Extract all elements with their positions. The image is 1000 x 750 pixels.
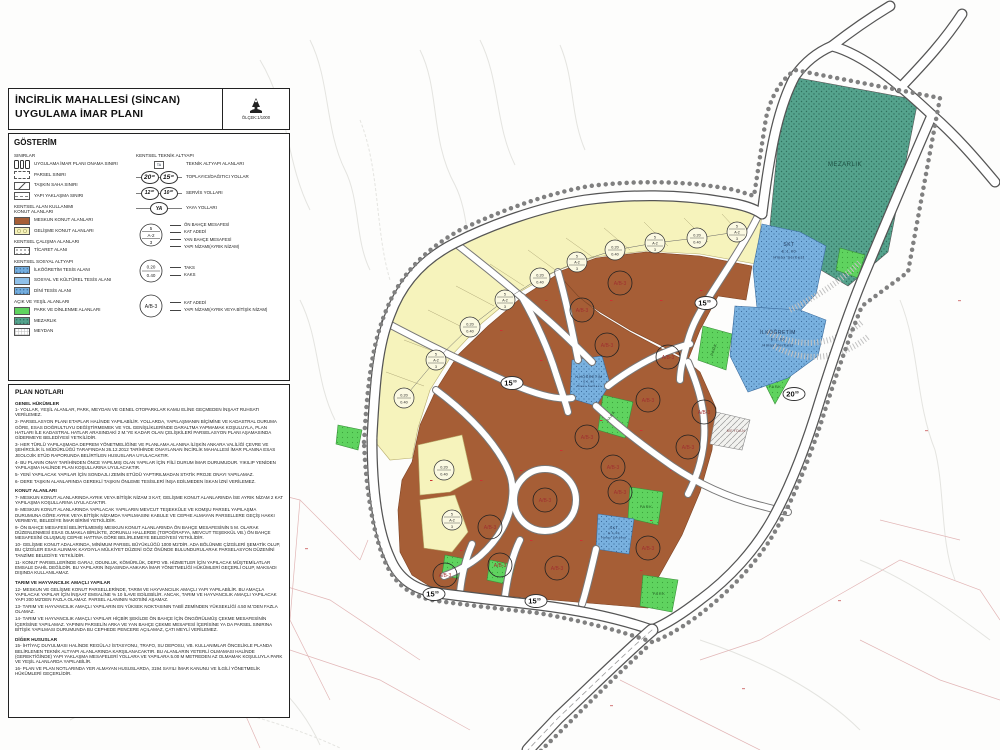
legend-item: 12001000SERVİS YOLLARI: [136, 187, 284, 200]
legend-group-title: KENTSEL ÇALIŞMA ALANLARI: [14, 239, 132, 244]
info-panel: İNCİRLİK MAHALLESİ (SİNCAN) UYGULAMA İMA…: [8, 88, 290, 718]
note-item: 7- MESKUN KONUT ALANLARINDA AYRIK VEYA B…: [15, 495, 283, 506]
setback-swatch-icon: [14, 192, 30, 200]
road-width-symbol-icon: 20001500: [136, 171, 182, 184]
ilkogretim-area: [730, 306, 826, 392]
note-section-title: DİĞER HUSUSLAR: [15, 637, 283, 642]
svg-text:0.20: 0.20: [693, 234, 700, 238]
legend-item: TAŞKIN SAHA SINIRI: [14, 182, 132, 190]
svg-text:0.40: 0.40: [147, 273, 156, 278]
svg-text:5: 5: [576, 255, 578, 259]
legend-callout-label: YAN BAHÇE MESAFESİ: [170, 237, 284, 242]
note-item: 11- KONUT PARSELLERİNDE GARAJ, ODUNLUK, …: [15, 560, 283, 576]
legend-item: UYGULAMA İMAR PLANI ONAMA SINIRI: [14, 161, 132, 169]
legend-item-label: PARSEL SINIRI: [34, 173, 66, 178]
svg-text:0.20: 0.20: [147, 264, 156, 269]
onama-swatch-icon: [14, 161, 30, 169]
block-regulation-text: A/B-3: [539, 498, 552, 504]
svg-text:0.20: 0.20: [611, 246, 618, 250]
meydan-swatch-icon: [14, 328, 30, 336]
plan-title-line2: UYGULAMA İMAR PLANI: [15, 108, 216, 122]
legend-item: SOSYAL VE KÜLTÜREL TESİS ALANI: [14, 277, 132, 285]
legend-item-label: TOPLAYICI/DAĞITICI YOLLAR: [186, 175, 249, 180]
park-label: PARK: [769, 384, 782, 389]
legend-item: PARK VE DİNLENME ALANLARI: [14, 307, 132, 315]
legend-item-label: TİCARET ALANI: [34, 248, 67, 253]
legend-item: TİCARET ALANI: [14, 247, 132, 255]
svg-text:A-2: A-2: [433, 359, 439, 363]
park-label: PARK: [640, 504, 653, 509]
svg-text:0.20: 0.20: [536, 274, 543, 278]
legend-left-column: SINIRLARUYGULAMA İMAR PLANI ONAMA SINIRI…: [14, 149, 132, 338]
svg-text:0.40: 0.40: [536, 281, 543, 285]
note-item: 16- PLAN VE PLAN NOTLARINDA YER ALMAYAN …: [15, 666, 283, 677]
legend-right-column: KENTSEL TEKNİK ALTYAPITATEKNİK ALTYAPI A…: [136, 149, 284, 338]
note-item: 14- TARIM VE HAYVANCILIK AMAÇLI YAPILAR …: [15, 616, 283, 632]
note-item: 12- MESKUN VE GELİŞME KONUT PARSELLERİND…: [15, 587, 283, 603]
svg-text:A-2: A-2: [652, 242, 658, 246]
ilk-swatch-icon: [14, 266, 30, 274]
note-item: 3- HER TÜRLÜ YAPILAŞMADA DEPREM YÖNETMEL…: [15, 442, 283, 458]
block-regulation-text: A/B-3: [439, 573, 452, 579]
park-swatch-icon: [14, 307, 30, 315]
park-area: [336, 425, 362, 450]
skt-swatch-icon: [14, 277, 30, 285]
legend-item: DİNİ TESİS ALANI: [14, 287, 132, 295]
legend-item: PARSEL SINIRI: [14, 171, 132, 179]
svg-text:0.40: 0.40: [693, 241, 700, 245]
flood-swatch-icon: [14, 182, 30, 190]
svg-text:A-2: A-2: [147, 233, 155, 238]
svg-text:3: 3: [576, 267, 578, 271]
block-regulation-text: A/B-3: [698, 410, 711, 416]
zoning-plan-document: 0.200.405A-230.200.405A-230.200.405A-230…: [0, 0, 1000, 750]
legend-item: YAYAYA YOLLARI: [136, 202, 284, 215]
svg-text:0.20: 0.20: [440, 466, 447, 470]
ticaret-swatch-icon: [14, 247, 30, 255]
legend-item-label: MEZARLIK: [34, 319, 57, 324]
title-block: İNCİRLİK MAHALLESİ (SİNCAN) UYGULAMA İMA…: [8, 88, 290, 130]
legend-item: YAPI YAKLAŞMA SINIRI: [14, 192, 132, 200]
svg-text:0.40: 0.40: [466, 330, 473, 334]
legend-group-title: SINIRLAR: [14, 153, 132, 158]
plan-notes-header: PLAN NOTLARI: [15, 389, 283, 396]
regulation-circle-icon: 5A-23: [136, 220, 166, 250]
block-regulation-text: A/B-3: [614, 490, 627, 496]
svg-text:0.20: 0.20: [400, 394, 407, 398]
legend-item-label: PARK VE DİNLENME ALANLARI: [34, 308, 100, 313]
svg-text:0.40: 0.40: [400, 401, 407, 405]
legend-callout: 0.200.40TAKSKAKS: [136, 256, 284, 286]
block-regulation-text: A/B-3: [614, 281, 627, 287]
svg-text:3: 3: [435, 365, 437, 369]
note-item: 10- GELİŞME KONUT ADALARINDA, MİNİMUM PA…: [15, 542, 283, 558]
plan-title-line1: İNCİRLİK MAHALLESİ (SİNCAN): [15, 94, 216, 108]
mezarlik-label: MEZARLIK: [828, 162, 862, 168]
plan-title: İNCİRLİK MAHALLESİ (SİNCAN) UYGULAMA İMA…: [9, 89, 222, 129]
legend-item: MESKUN KONUT ALANLARI: [14, 217, 132, 225]
meydan-label: MEYDAN: [727, 429, 745, 433]
svg-text:3: 3: [736, 237, 738, 241]
legend-callout-label: KAT ADEDİ: [170, 229, 284, 234]
svg-text:0.40: 0.40: [611, 253, 618, 257]
legend-item-label: GELİŞME KONUT ALANLARI: [34, 229, 94, 234]
svg-text:5: 5: [451, 513, 453, 517]
legend-group-title: AÇIK VE YEŞİL ALANLARI: [14, 299, 132, 304]
note-section-title: GENEL HÜKÜMLER: [15, 401, 283, 406]
legend-item-label: SERVİS YOLLARI: [186, 191, 223, 196]
legend-group-title: KENTSEL SOSYAL ALTYAPI: [14, 259, 132, 264]
legend-item-label: MEYDAN: [34, 329, 53, 334]
legend-item-label: MESKUN KONUT ALANLARI: [34, 218, 93, 223]
road-width-symbol-icon: YA: [136, 202, 182, 215]
teknik-altyapi-swatch-icon: TA: [154, 161, 164, 169]
note-item: 2- PARSELASYON PLANI ETAPLAR HALİNDE YAP…: [15, 419, 283, 440]
svg-text:0.20: 0.20: [466, 323, 473, 327]
legend-group-title: KENTSEL ALAN KULLANIMI KONUT ALANLARI: [14, 204, 132, 214]
svg-text:5: 5: [504, 293, 506, 297]
plan-notes: PLAN NOTLARI GENEL HÜKÜMLER1- YOLLAR, YE…: [8, 384, 290, 718]
svg-text:0.40: 0.40: [440, 473, 447, 477]
legend-header: GÖSTERİM: [14, 138, 284, 147]
legend-item-label: YAPI YAKLAŞMA SINIRI: [34, 194, 83, 199]
svg-text:3: 3: [654, 248, 656, 252]
legend-callout: 5A-23ÖN BAHÇE MESAFESİKAT ADEDİYAN BAHÇE…: [136, 220, 284, 251]
block-regulation-text: A/B-3: [642, 546, 655, 552]
svg-text:5: 5: [654, 236, 656, 240]
svg-text:A-2: A-2: [449, 519, 455, 523]
block-regulation-text: A/B-3: [576, 308, 589, 314]
svg-text:A-2: A-2: [574, 261, 580, 265]
legend-item: MEYDAN: [14, 328, 132, 336]
note-item: 15- İHTİYAÇ DUYULMASI HALİNDE REGÜLAJ İS…: [15, 643, 283, 664]
note-item: 5- YENİ YAPILACAK YAPILAR İÇİN SONDAJLI …: [15, 472, 283, 477]
block-regulation-text: A/B-3: [551, 566, 564, 572]
block-regulation-text: A/B-3: [601, 343, 614, 349]
legend-callout-label: TAKS: [170, 265, 284, 270]
note-item: 9- ÖN BAHÇE MESAFESİ BELİRTİLMEMİŞ MESKU…: [15, 525, 283, 541]
legend-callout-label: KAKS: [170, 272, 284, 277]
legend-group-title: KENTSEL TEKNİK ALTYAPI: [136, 153, 284, 158]
note-item: 6- DERE TAŞKIN ALANLARINDA GEREKLİ TAŞKI…: [15, 479, 283, 484]
svg-text:A-2: A-2: [502, 299, 508, 303]
legend-item: 20001500TOPLAYICI/DAĞITICI YOLLAR: [136, 171, 284, 184]
gelisme-swatch-icon: [14, 227, 30, 235]
svg-text:A-2: A-2: [734, 231, 740, 235]
block-regulation-text: A/B-3: [607, 465, 620, 471]
parcel-swatch-icon: [14, 171, 30, 179]
svg-text:5: 5: [736, 225, 738, 229]
legend-item-label: YAYA YOLLARI: [186, 206, 217, 211]
block-regulation-text: A/B-3: [484, 525, 497, 531]
legend-item: TATEKNİK ALTYAPI ALANLARI: [136, 161, 284, 169]
note-section-title: KONUT ALANLARI: [15, 488, 283, 493]
svg-text:3: 3: [451, 525, 453, 529]
legend-item-label: İLKÖĞRETİM TESİS ALANI: [34, 268, 90, 273]
meskun-swatch-icon: [14, 217, 30, 225]
legend-item: GELİŞME KONUT ALANLARI: [14, 227, 132, 235]
dini-swatch-icon: [14, 287, 30, 295]
block-regulation-text: A/B-3: [581, 435, 594, 441]
municipality-emblem-icon: [247, 98, 265, 114]
legend-callout-label: YAPI NİZAMI(AYRIK VEYA BİTİŞİK NİZAM): [170, 307, 284, 312]
legend-callout-label: YAPI NİZAMI(AYRIK NİZAM): [170, 244, 284, 249]
exit-road: [528, 630, 652, 750]
note-item: 13- TARIM VE HAYVANCILIK AMAÇLI YAPILARI…: [15, 604, 283, 615]
note-item: 1- YOLLAR, YEŞİL ALANLAR, PARK, MEYDAN V…: [15, 407, 283, 418]
legend-item-label: UYGULAMA İMAR PLANI ONAMA SINIRI: [34, 162, 118, 167]
logo-box: ÖLÇEK:1/1000: [222, 89, 289, 129]
scale-label: ÖLÇEK:1/1000: [242, 115, 270, 120]
note-item: 4- BU PLANIN ONAY TARİHİNDEN ÖNCE YAPILM…: [15, 460, 283, 471]
legend-callout-label: ÖN BAHÇE MESAFESİ: [170, 222, 284, 227]
park-label: PARK: [653, 591, 666, 596]
note-section-title: TARIM VE HAYVANCILIK AMAÇLI YAPILAR: [15, 580, 283, 585]
legend-item-label: SOSYAL VE KÜLTÜREL TESİS ALANI: [34, 278, 111, 283]
svg-text:A/B-3: A/B-3: [145, 304, 158, 310]
block-regulation-text: A/B-3: [494, 563, 507, 569]
legend-callout: A/B-3KAT ADEDİYAPI NİZAMI(AYRIK VEYA BİT…: [136, 291, 284, 321]
block-regulation-text: A/B-3: [662, 355, 675, 361]
note-item: 8- MESKUN KONUT ALANLARINDA YAPILACAK YA…: [15, 507, 283, 523]
svg-text:5: 5: [435, 353, 437, 357]
legend-item-label: DİNİ TESİS ALANI: [34, 289, 71, 294]
block-regulation-text: A/B-3: [682, 445, 695, 451]
road-width-symbol-icon: 12001000: [136, 187, 182, 200]
legend-item-label: TEKNİK ALTYAPI ALANLARI: [186, 162, 244, 167]
legend: GÖSTERİM SINIRLARUYGULAMA İMAR PLANI ONA…: [8, 133, 290, 381]
plan-notes-body: GENEL HÜKÜMLER1- YOLLAR, YEŞİL ALANLAR, …: [15, 401, 283, 677]
legend-item: İLKÖĞRETİM TESİS ALANI: [14, 266, 132, 274]
block-regulation-text: A/B-3: [642, 398, 655, 404]
mezarlik-swatch-icon: [14, 317, 30, 325]
regulation-circle-icon: A/B-3: [136, 291, 166, 321]
legend-callout-label: KAT ADEDİ: [170, 300, 284, 305]
svg-text:3: 3: [504, 305, 506, 309]
regulation-circle-icon: 0.200.40: [136, 256, 166, 286]
legend-item-label: TAŞKIN SAHA SINIRI: [34, 183, 78, 188]
legend-item: MEZARLIK: [14, 317, 132, 325]
